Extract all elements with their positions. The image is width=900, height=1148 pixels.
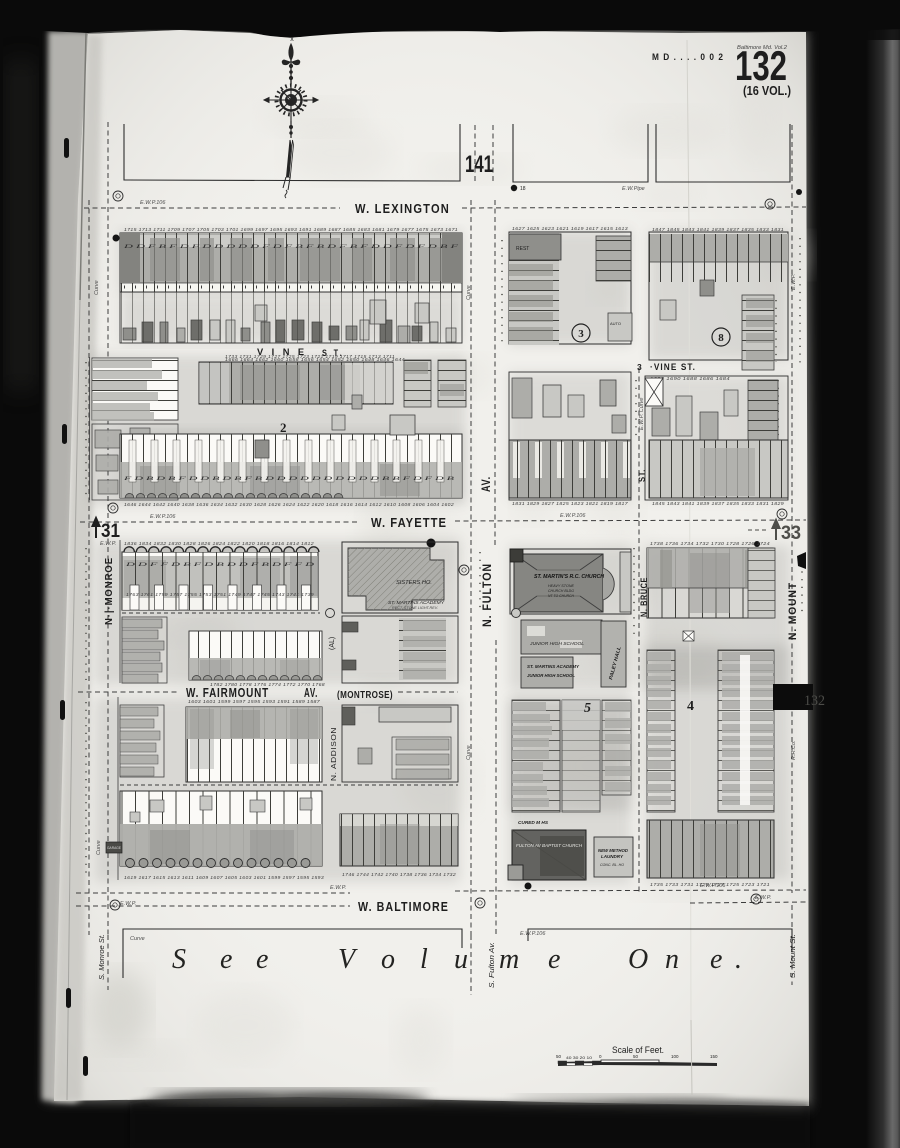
svg-text:·VINE ST.: ·VINE ST. bbox=[650, 362, 696, 372]
svg-text:e: e bbox=[710, 944, 722, 975]
svg-text:ST. MARTINS ACADEMY: ST. MARTINS ACADEMY bbox=[527, 664, 580, 669]
svg-text:N·|·MONROE: N·|·MONROE bbox=[103, 557, 115, 625]
svg-text:Curve: Curve bbox=[466, 285, 472, 300]
svg-text:1836 1834 1832 1830 1828 1826: 1836 1834 1832 1830 1828 1826 1824 1822 … bbox=[124, 541, 314, 546]
svg-text:1715 1713 1711 1709 1707 1705: 1715 1713 1711 1709 1707 1705 1703 1701 … bbox=[124, 227, 458, 232]
svg-text:AV.: AV. bbox=[304, 686, 318, 700]
svg-text:(MONTROSE): (MONTROSE) bbox=[337, 689, 393, 701]
svg-text:e: e bbox=[220, 944, 232, 975]
svg-text:GARAGE: GARAGE bbox=[107, 846, 122, 850]
svg-text:O: O bbox=[628, 944, 648, 975]
svg-text:3: 3 bbox=[637, 362, 642, 372]
svg-text:F D B D B F D D B D B F B D D: F D B D B F D D B D B F B D D D D D D D … bbox=[122, 477, 454, 482]
svg-text:18: 18 bbox=[520, 186, 526, 192]
svg-text:CONC. BL. HO: CONC. BL. HO bbox=[600, 863, 624, 867]
svg-text:1763 1761 1759 1757 1755 1753: 1763 1761 1759 1757 1755 1753 1751 1749 … bbox=[126, 592, 314, 597]
svg-text:100: 100 bbox=[671, 1054, 679, 1059]
svg-text:33: 33 bbox=[781, 523, 801, 544]
svg-text:CURED M HS: CURED M HS bbox=[518, 820, 548, 825]
svg-text:REST: REST bbox=[516, 246, 529, 252]
svg-text:e: e bbox=[256, 944, 268, 975]
svg-text:40 30 20 10: 40 30 20 10 bbox=[566, 1055, 593, 1060]
svg-text:31: 31 bbox=[101, 521, 120, 542]
svg-text:E.W.P.: E.W.P. bbox=[120, 901, 136, 907]
svg-text:E.W.P.106: E.W.P.106 bbox=[520, 931, 546, 937]
svg-text:1738 1736 1734 1732 1730 1728: 1738 1736 1734 1732 1730 1728 1726 1724 bbox=[650, 541, 770, 546]
svg-text:1646 1644 1642 1640 1638 1636: 1646 1644 1642 1640 1638 1636 1634 1632 … bbox=[124, 502, 454, 507]
svg-text:JUNIOR HIGH SCHOOL: JUNIOR HIGH SCHOOL bbox=[529, 641, 585, 646]
svg-text:E.W.P.: E.W.P. bbox=[791, 274, 797, 290]
svg-text:AUTO: AUTO bbox=[610, 321, 621, 326]
svg-text:W. BALTIMORE: W. BALTIMORE bbox=[358, 899, 449, 914]
svg-text:m: m bbox=[499, 944, 519, 975]
svg-text:N. FULTON: N. FULTON bbox=[482, 563, 494, 627]
svg-text:5: 5 bbox=[584, 701, 591, 716]
svg-text:1782 1780 1778 1776 1774 1772: 1782 1780 1778 1776 1774 1772 1770 1768 bbox=[210, 682, 325, 687]
svg-text:N. MOUNT: N. MOUNT bbox=[787, 582, 799, 640]
svg-text:Curve: Curve bbox=[130, 936, 145, 942]
svg-text:u: u bbox=[454, 944, 468, 975]
svg-text:3: 3 bbox=[578, 328, 584, 340]
svg-text:4: 4 bbox=[687, 699, 694, 714]
svg-text:50: 50 bbox=[633, 1054, 639, 1059]
svg-text:(AL): (AL) bbox=[329, 637, 336, 650]
svg-text:Curve: Curve bbox=[94, 280, 100, 295]
svg-text:ST. MARTIN'S R.C. CHURCH: ST. MARTIN'S R.C. CHURCH bbox=[534, 574, 604, 580]
svg-text:CHURCH BLDG: CHURCH BLDG bbox=[548, 589, 574, 593]
svg-text:HEAVY STONE: HEAVY STONE bbox=[548, 584, 575, 588]
svg-text:RECT. STONE LIGHT.REV.: RECT. STONE LIGHT.REV. bbox=[392, 606, 438, 610]
svg-text:E.W.P.106: E.W.P.106 bbox=[140, 200, 166, 206]
svg-text:1847 1845 1843 1841 1839 1837: 1847 1845 1843 1841 1839 1837 1835 1833 … bbox=[652, 227, 784, 232]
svg-text:ST.: ST. bbox=[637, 469, 648, 482]
svg-text:50: 50 bbox=[556, 1054, 562, 1059]
svg-text:FULTON AV BAPTIST CHURCH: FULTON AV BAPTIST CHURCH bbox=[516, 843, 582, 849]
svg-text:Curve: Curve bbox=[96, 840, 102, 855]
svg-text:AV.: AV. bbox=[481, 476, 493, 492]
svg-text:1733 1731 1729 1727 1725 1723: 1733 1731 1729 1727 1725 1723 1721 1719 … bbox=[225, 354, 395, 359]
svg-text:S: S bbox=[172, 944, 186, 975]
svg-text:8: 8 bbox=[718, 332, 724, 344]
svg-text:1746 1744 1742 1740 1738 1736: 1746 1744 1742 1740 1738 1736 1734 1732 bbox=[342, 872, 456, 877]
svg-text:E.W.P. Curve: E.W.P. Curve bbox=[639, 398, 645, 430]
svg-text:SISTERS HO.: SISTERS HO. bbox=[396, 580, 432, 586]
svg-text:.: . bbox=[735, 944, 742, 975]
svg-text:2: 2 bbox=[280, 420, 287, 435]
svg-text:S. Mount St.: S. Mount St. bbox=[790, 934, 797, 978]
svg-text:R.R.Co.: R.R.Co. bbox=[791, 740, 797, 760]
svg-text:S. Fulton Av.: S. Fulton Av. bbox=[489, 942, 496, 988]
svg-text:E.W.P.: E.W.P. bbox=[755, 895, 771, 901]
svg-text:ST. MARTINS ACADEMY: ST. MARTINS ACADEMY bbox=[388, 600, 445, 605]
svg-text:W. LEXINGTON: W. LEXINGTON bbox=[355, 201, 450, 216]
svg-text:132: 132 bbox=[735, 42, 787, 89]
svg-text:1627 1625 1623 1621 1619 1617: 1627 1625 1623 1621 1619 1617 1615 1613 bbox=[512, 226, 628, 231]
svg-text:1603 1601 1599 1597 1595 1593: 1603 1601 1599 1597 1595 1593 1591 1589 … bbox=[188, 699, 320, 704]
svg-text:l: l bbox=[420, 944, 428, 975]
svg-text:Curve: Curve bbox=[466, 745, 472, 760]
svg-text:NT TO CHURCH: NT TO CHURCH bbox=[548, 594, 574, 598]
svg-text:150: 150 bbox=[710, 1054, 718, 1059]
svg-text:E.W.Pipe: E.W.Pipe bbox=[622, 186, 645, 192]
svg-text:1845 1843 1841 1839 1837 1835: 1845 1843 1841 1839 1837 1835 1833 1831 … bbox=[652, 501, 784, 506]
svg-text:V: V bbox=[338, 944, 358, 975]
svg-text:E.W.P.106: E.W.P.106 bbox=[560, 513, 586, 519]
svg-text:132: 132 bbox=[804, 693, 825, 709]
svg-text:NEW METHOD: NEW METHOD bbox=[598, 848, 629, 853]
svg-text:(16 VOL.): (16 VOL.) bbox=[743, 83, 791, 98]
svg-text:JUNIOR HIGH SCHOOL: JUNIOR HIGH SCHOOL bbox=[527, 673, 575, 678]
svg-text:D D F F D B F D B D D F B D F: D D F F D B F D B D D F B D F F D bbox=[124, 563, 315, 568]
svg-text:W. FAYETTE: W. FAYETTE bbox=[371, 515, 447, 530]
svg-text:E.W.P.: E.W.P. bbox=[330, 885, 346, 891]
svg-text:N. ADDISON: N. ADDISON bbox=[331, 727, 338, 781]
svg-text:D D F B F D F D D D D D F D F: D D F B F D F D D D D D F D F B F B D F … bbox=[122, 245, 461, 250]
svg-text:W. FAIRMOUNT: W. FAIRMOUNT bbox=[186, 686, 269, 700]
svg-text:x: x bbox=[290, 36, 294, 43]
svg-text:o: o bbox=[381, 944, 395, 975]
svg-text:141: 141 bbox=[465, 151, 493, 178]
svg-text:1619 1617 1615 1613 1611 1609: 1619 1617 1615 1613 1611 1609 1607 1605 … bbox=[124, 875, 324, 880]
svg-text:LAUNDRY: LAUNDRY bbox=[601, 854, 624, 859]
svg-text:M D . . . . 0 0 2: M D . . . . 0 0 2 bbox=[652, 52, 724, 63]
svg-text:S. Monroe St.: S. Monroe St. bbox=[99, 934, 106, 980]
svg-text:1735 1733 1731 1729 1727 1725: 1735 1733 1731 1729 1727 1725 1723 1721 bbox=[650, 882, 770, 887]
svg-text:E.W.P.106: E.W.P.106 bbox=[150, 514, 176, 520]
svg-text:e: e bbox=[548, 944, 560, 975]
svg-text:1831 1829 1827 1825 1823 1821: 1831 1829 1827 1825 1823 1821 1819 1817 bbox=[512, 501, 628, 506]
svg-text:n: n bbox=[665, 944, 679, 975]
